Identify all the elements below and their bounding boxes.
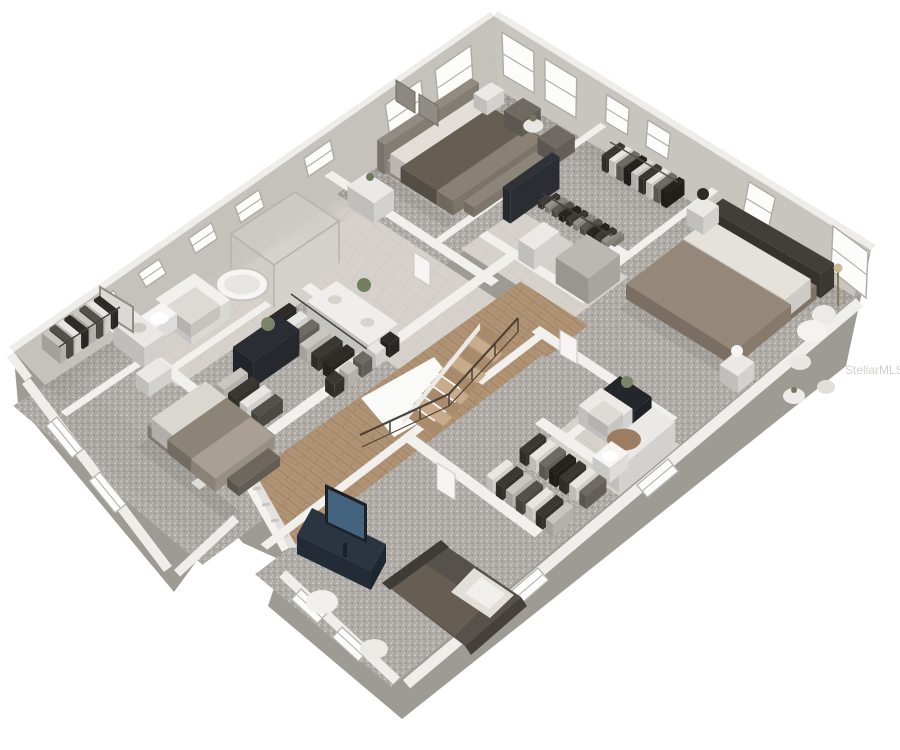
svg-text:SteliarMLS: SteliarMLS xyxy=(845,363,900,377)
